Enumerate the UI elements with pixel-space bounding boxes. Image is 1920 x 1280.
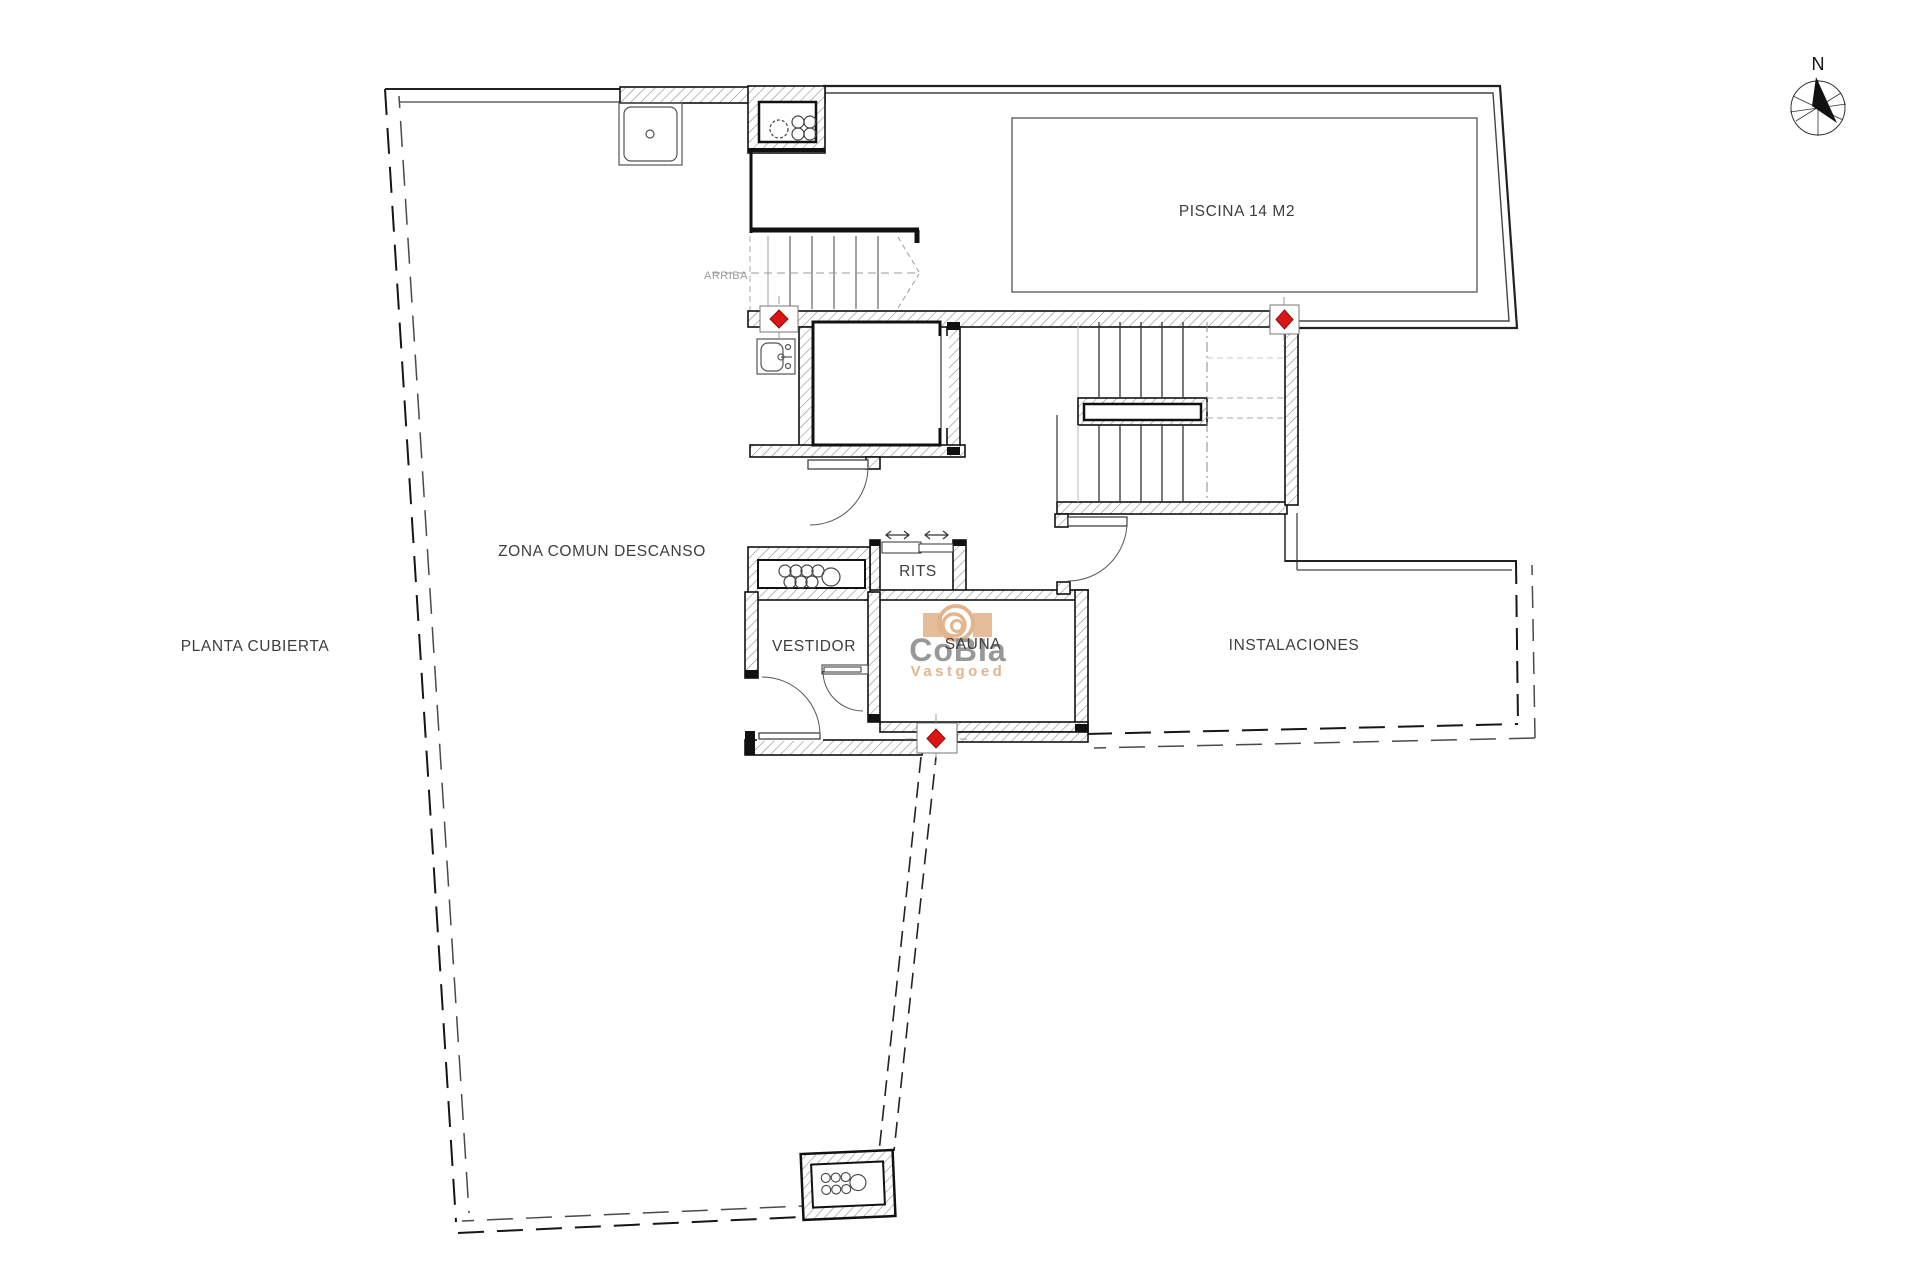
elevator-door — [936, 336, 949, 428]
door-vestidor-interior — [822, 665, 868, 711]
terrace-fixture — [801, 1150, 896, 1220]
door-lobby — [808, 460, 868, 525]
door-rits-sliding — [882, 531, 953, 553]
elevator-shaft — [813, 322, 940, 445]
label-piscina: PISCINA 14 M2 — [1179, 203, 1295, 220]
label-planta-cubierta: PLANTA CUBIERTA — [181, 638, 330, 655]
door-vestidor-exterior — [757, 677, 823, 741]
label-zona-comun: ZONA COMUN DESCANSO — [498, 543, 706, 560]
label-sauna: SAUNA — [945, 636, 1001, 653]
label-rits: RITS — [899, 563, 937, 580]
door-instalaciones — [1068, 517, 1127, 581]
spa-box-interior — [759, 102, 816, 142]
watermark-subtitle-text: Vastgoed — [911, 663, 1006, 680]
sliding-arrows-icon — [886, 531, 948, 539]
north-compass-icon: N — [1790, 54, 1846, 136]
north-letter: N — [1812, 54, 1825, 74]
floor-plan-page: CoBIa Vastgoed PLANTA CUBIERTA ZONA COMU… — [0, 0, 1920, 1280]
label-arriba: ARRIBA — [704, 270, 748, 282]
label-instalaciones: INSTALACIONES — [1229, 637, 1360, 654]
walkway-dashed-lines — [879, 757, 936, 1152]
kitchen-sink-icon — [757, 339, 795, 374]
floor-plan-drawing: CoBIa Vastgoed PLANTA CUBIERTA ZONA COMU… — [0, 0, 1920, 1280]
shower-tray-icon — [619, 103, 682, 165]
thick-lines — [748, 150, 919, 243]
label-vestidor: VESTIDOR — [772, 638, 856, 655]
stair-rail — [1084, 404, 1201, 420]
